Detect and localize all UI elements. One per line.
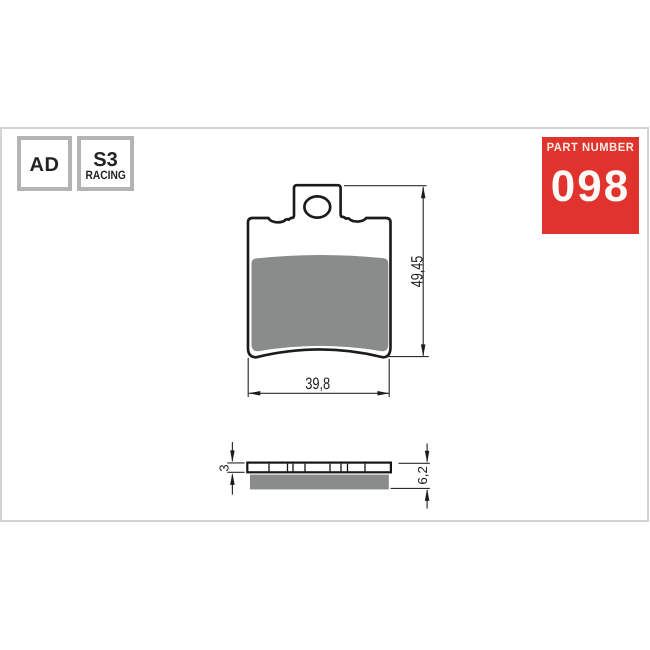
svg-text:39,8: 39,8 (305, 375, 330, 393)
svg-text:6,2: 6,2 (415, 466, 430, 485)
svg-text:3: 3 (217, 464, 232, 471)
svg-text:49,45: 49,45 (409, 256, 427, 288)
